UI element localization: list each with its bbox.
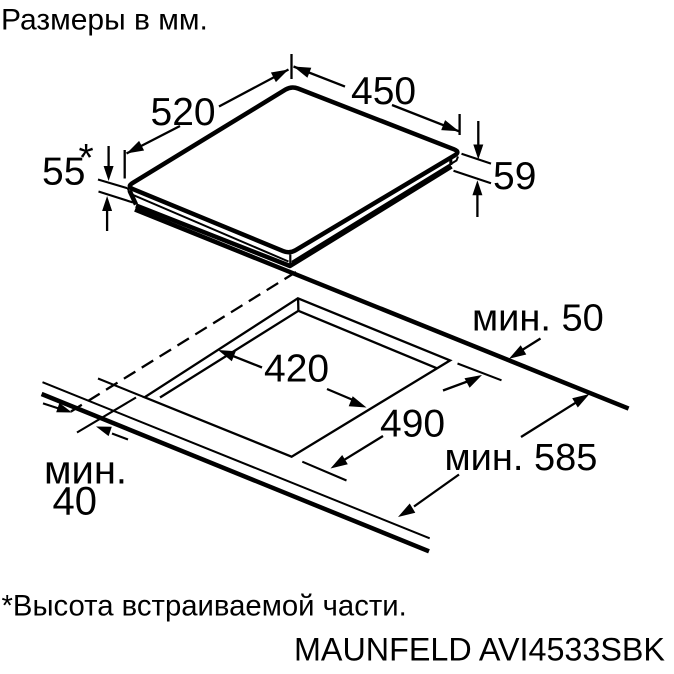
- svg-text:420: 420: [264, 348, 329, 391]
- svg-text:MAUNFELD AVI4533SBK: MAUNFELD AVI4533SBK: [294, 632, 665, 668]
- svg-text:450: 450: [351, 70, 416, 113]
- svg-text:520: 520: [151, 91, 216, 134]
- svg-text:*Высота встраиваемой части.: *Высота встраиваемой части.: [2, 590, 407, 623]
- svg-text:Размеры в мм.: Размеры в мм.: [1, 4, 208, 37]
- svg-text:*: *: [79, 137, 94, 180]
- svg-text:490: 490: [380, 403, 445, 446]
- svg-text:мин. 50: мин. 50: [472, 298, 604, 340]
- svg-text:40: 40: [53, 480, 98, 524]
- svg-text:мин. 585: мин. 585: [445, 437, 598, 479]
- svg-text:59: 59: [493, 155, 536, 198]
